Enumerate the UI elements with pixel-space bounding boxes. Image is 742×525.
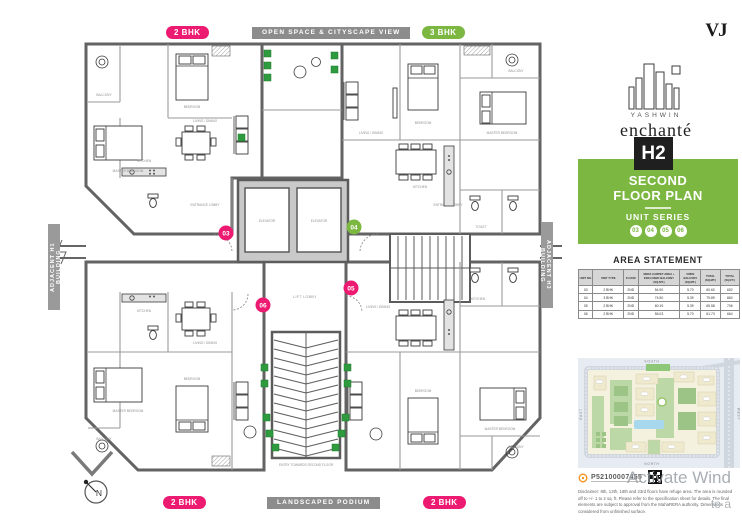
badge-3bhk-top: 3 BHK [422, 26, 465, 39]
activate-windows-watermark: Activate Wind [627, 468, 731, 488]
area-table-header-cell: UNIT NO. [579, 270, 593, 286]
floor-title-line1: SECOND [578, 174, 738, 189]
room-label: BALCONY [508, 445, 524, 449]
area-table-cell: 5.70 [680, 286, 701, 294]
floor-plan-brochure: ELEVATOR ELEVATOR ENTRY TOWARDS SECOND F… [0, 0, 742, 525]
vj-developer-logo: VJ [694, 20, 738, 42]
area-table-header-cell: OPEN BALCONY (SQ.MT.) [680, 270, 701, 286]
area-table-cell: 06 [579, 310, 593, 318]
area-table-header-cell: TOTAL (SQ.MT.) [701, 270, 720, 286]
floor-title-line2: FLOOR PLAN [578, 189, 738, 204]
bed [176, 386, 208, 432]
kitchen-counter [444, 300, 454, 350]
map-you-are-here [658, 398, 666, 406]
unit-series-circles: 03040506 [578, 225, 738, 237]
area-table-cell: 2 BHK [593, 310, 624, 318]
unit-marker-04: 04 [347, 220, 362, 235]
wardrobe [212, 46, 230, 56]
table-row: 032 BHK2ND54.905.7060.60652 [579, 286, 740, 294]
area-table-cell: 2ND [624, 302, 638, 310]
area-table-cell: 54.90 [638, 286, 680, 294]
area-table-header-cell: UNIT TYPE [593, 270, 624, 286]
room-label: MASTER BEDROOM [113, 409, 144, 413]
bed [480, 388, 526, 420]
area-table-cell: 74.50 [638, 294, 680, 302]
map-label-right: WEST [737, 408, 741, 420]
wardrobe [464, 46, 490, 55]
unit-marker-06: 06 [256, 298, 271, 313]
brand-name-small: YASHWIN [595, 112, 717, 119]
pointed-balcony [72, 452, 112, 474]
lift-lobby-label: LIFT LOBBY [293, 295, 317, 299]
map-label-bottom: NORTH [644, 462, 659, 466]
bed [480, 92, 526, 124]
area-table-cell: 04 [579, 294, 593, 302]
badge-2bhk-bottom-left: 2 BHK [163, 496, 206, 509]
room-label: KITCHEN [137, 309, 152, 313]
unit-series-badge: 05 [660, 225, 672, 237]
unit-series-badge: 06 [675, 225, 687, 237]
wardrobe [212, 456, 230, 466]
room-label: BEDROOM [184, 377, 201, 381]
room-label: LIVING / DINING [359, 131, 384, 135]
area-table-header-cell: FLOOR [624, 270, 638, 286]
svg-text:05: 05 [347, 286, 355, 293]
badge-adjacent-h3: ADJACENT H3 BUILDING [541, 222, 553, 308]
tv-unit [393, 88, 397, 118]
room-label: MASTER BEDROOM [485, 427, 516, 431]
dining-table [396, 310, 436, 346]
area-table-cell: 05 [579, 302, 593, 310]
area-table-cell: 2 BHK [593, 286, 624, 294]
area-table-cell: 61.73 [701, 310, 720, 318]
sofa [344, 82, 358, 120]
room-label: KITCHEN [413, 185, 428, 189]
floor-title-panel: SECOND FLOOR PLAN UNIT SERIES 03040506 [578, 159, 738, 244]
area-statement-title: AREA STATEMENT [578, 255, 738, 265]
entrance-lobby-label: ENTRANCE LOBBY [190, 203, 220, 207]
area-table-cell: 2ND [624, 294, 638, 302]
area-table-cell: 706 [720, 302, 739, 310]
room-label: BEDROOM [415, 389, 432, 393]
unit-marker-03: 03 [219, 226, 234, 241]
bed [408, 398, 438, 444]
map-pond [634, 420, 664, 429]
table-row: 043 BHK2ND74.505.3979.89860 [579, 294, 740, 302]
dining-table [396, 144, 436, 180]
area-table-cell: 60.60 [701, 286, 720, 294]
area-table-cell: 56.03 [638, 310, 680, 318]
unit-marker-05: 05 [344, 281, 359, 296]
area-table-cell: 664 [720, 310, 739, 318]
kitchen-counter [122, 294, 166, 302]
divider [645, 207, 671, 209]
room-label: LIVING / DINING [193, 341, 218, 345]
area-table-cell: 5.70 [680, 310, 701, 318]
bed [94, 368, 142, 402]
room-label: BALCONY [96, 93, 112, 97]
bed [94, 126, 142, 160]
activate-windows-watermark-line2: to a [711, 497, 731, 511]
sofa [234, 382, 248, 420]
room-label: TOILET [475, 225, 486, 229]
sofa [348, 382, 362, 420]
skyline-icon [627, 60, 685, 110]
svg-text:04: 04 [350, 225, 358, 232]
compass-n-label: N [96, 488, 102, 498]
room-label: MASTER BEDROOM [487, 131, 518, 135]
area-table-header-cell: RERA CARPET AREA + ENCLOSED BALCONY (SQ.… [638, 270, 680, 286]
tower-badge-h2: H2 [634, 137, 673, 170]
area-table-cell: 2ND [624, 310, 638, 318]
badge-2bhk-bottom-right: 2 BHK [423, 496, 466, 509]
badge-landscaped-podium: LANDSCAPED PODIUM [267, 497, 380, 509]
area-table-cell: 5.39 [680, 294, 701, 302]
table-row: 052 BHK2ND60.195.3965.58706 [579, 302, 740, 310]
table-row: 062 BHK2ND56.035.7061.73664 [579, 310, 740, 318]
room-label: MASTER BEDROOM [113, 169, 144, 173]
area-table-cell: 60.19 [638, 302, 680, 310]
badge-2bhk-top: 2 BHK [166, 26, 209, 39]
area-table-cell: 03 [579, 286, 593, 294]
maharera-icon [578, 473, 588, 483]
bed [408, 64, 438, 110]
unit-series-badge: 03 [630, 225, 642, 237]
area-table-cell: 860 [720, 294, 739, 302]
elevator-core: ELEVATOR ELEVATOR [238, 180, 348, 262]
area-table-body: 032 BHK2ND54.905.7060.60652043 BHK2ND74.… [579, 286, 740, 319]
room-label: BALCONY [508, 69, 524, 73]
entry-grand-staircase: ENTRY TOWARDS SECOND FLOOR [272, 332, 340, 467]
map-label-left: EAST [579, 408, 583, 420]
map-label-top: SOUTH [644, 360, 659, 364]
badge-open-space: OPEN SPACE & CITYSCAPE VIEW [252, 27, 410, 39]
room-label: KITCHEN [471, 297, 486, 301]
staircase [390, 234, 470, 302]
floor-plan-drawing: ELEVATOR ELEVATOR ENTRY TOWARDS SECOND F… [0, 0, 565, 525]
room-label: BALCONY [96, 437, 112, 441]
area-table-cell: 652 [720, 286, 739, 294]
elevator-label: ELEVATOR [311, 219, 328, 223]
unit-series-badge: 04 [645, 225, 657, 237]
project-logo: YASHWIN enchanté [595, 60, 717, 141]
area-table-header-cell: TOTAL (SQ.FT.) [720, 270, 739, 286]
north-compass-icon: N [84, 480, 107, 503]
unit-series-label: UNIT SERIES [578, 212, 738, 222]
area-table-cell: 65.58 [701, 302, 720, 310]
area-table-head-row: UNIT NO.UNIT TYPEFLOORRERA CARPET AREA +… [579, 270, 740, 286]
area-table-cell: 2ND [624, 286, 638, 294]
area-table-cell: 79.89 [701, 294, 720, 302]
area-table-cell: 2 BHK [593, 302, 624, 310]
area-table-cell: 3 BHK [593, 294, 624, 302]
key-plan-map: SOUTH NORTH EAST WEST [578, 358, 740, 468]
area-statement-table: UNIT NO.UNIT TYPEFLOORRERA CARPET AREA +… [578, 269, 740, 319]
room-label: LIVING / DINING [193, 119, 218, 123]
bed [176, 54, 208, 100]
entry-stair-label: ENTRY TOWARDS SECOND FLOOR [279, 463, 334, 467]
room-label: BEDROOM [415, 121, 432, 125]
room-label: LIVING / DINING [366, 305, 391, 309]
area-table-cell: 5.39 [680, 302, 701, 310]
svg-text:03: 03 [222, 231, 230, 238]
elevator-label: ELEVATOR [259, 219, 276, 223]
svg-text:06: 06 [259, 303, 267, 310]
room-label: BEDROOM [184, 105, 201, 109]
badge-adjacent-h1: ADJACENT H1 BUILDING [48, 224, 60, 310]
room-label: KITCHEN [137, 159, 152, 163]
